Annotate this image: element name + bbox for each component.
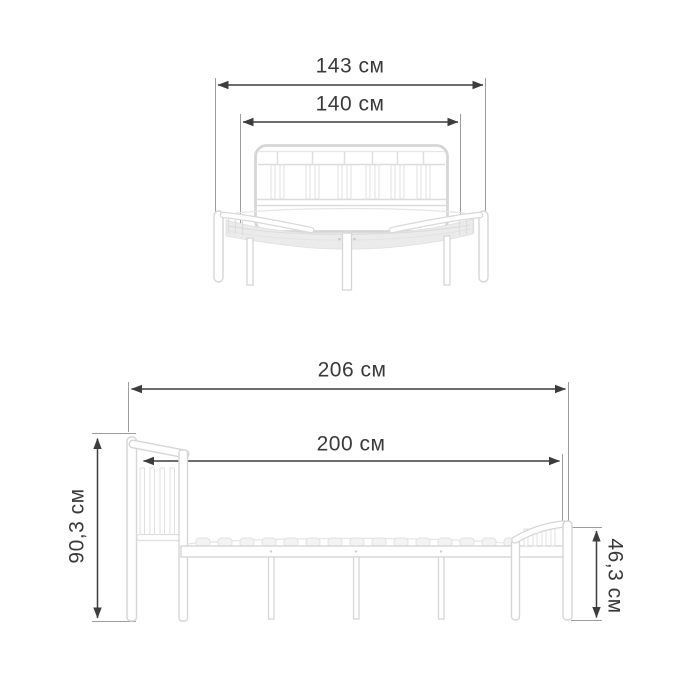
dim-label-footboard-height: 46,3 см <box>605 538 626 613</box>
dim-label-headboard-height: 90,3 см <box>67 488 88 563</box>
headboard-rear-post <box>127 437 137 621</box>
front-left-corner-leg <box>214 211 223 282</box>
footboard-front-post <box>512 540 520 620</box>
side-view-legs <box>269 557 445 619</box>
dimension-diagram: 143 см 140 см 206 см 200 см 90,3 см 46,3… <box>0 0 700 700</box>
dim-label-mattress-width: 140 см <box>316 94 385 115</box>
bed-side-drawing <box>127 437 572 621</box>
side-rail <box>181 546 567 557</box>
footboard-rear-post <box>563 521 572 620</box>
headboard-side-slats <box>140 468 175 536</box>
dim-label-mattress-length: 200 см <box>317 434 386 455</box>
bed-front-drawing <box>214 146 488 291</box>
headboard-front-post <box>179 450 188 621</box>
side-view <box>92 382 602 622</box>
dim-label-outer-width: 143 см <box>316 56 385 77</box>
side-view-extension-lines <box>92 382 602 622</box>
dim-label-outer-length: 206 см <box>318 360 387 381</box>
front-right-corner-leg <box>479 211 488 282</box>
